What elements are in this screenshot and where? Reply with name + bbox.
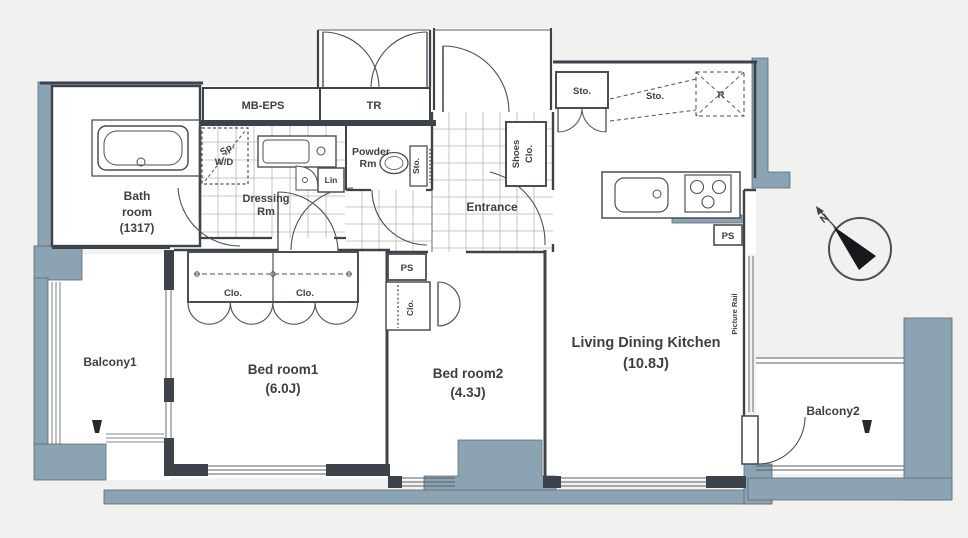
label-powder-2: Rm <box>360 158 377 170</box>
label-fridge: R <box>718 90 725 101</box>
trunk-porch-floor <box>318 30 430 88</box>
balcony1-left-band <box>34 278 48 446</box>
label-shoes-clo: Clo. <box>524 145 535 163</box>
label-ldk-name: Living Dining Kitchen <box>571 335 720 351</box>
room-floors <box>48 28 904 480</box>
label-clo-left: Clo. <box>224 288 242 299</box>
label-bed2-size: (4.3J) <box>450 385 485 400</box>
entry-porch-floor <box>432 28 553 112</box>
wall-ldk-bottom-b <box>706 476 746 488</box>
compass-needle <box>833 226 876 270</box>
ldk-east-window-lines <box>749 256 753 412</box>
label-bed1-size: (6.0J) <box>265 381 300 396</box>
label-sto-toilet: Sto. <box>411 158 421 174</box>
label-washer-wd: W/D <box>215 157 234 168</box>
wall-bed1-west-a <box>164 250 174 290</box>
label-sto-closet: Sto. <box>573 86 591 97</box>
label-north: N <box>818 212 832 226</box>
label-tr: TR <box>367 100 382 112</box>
wall-ldk-bottom-a <box>543 476 561 488</box>
label-clo-right: Clo. <box>296 288 314 299</box>
label-shoes: Shoes <box>511 140 522 169</box>
label-powder-1: Powder <box>352 146 390 158</box>
label-bath-3: (1317) <box>120 221 155 235</box>
label-entrance: Entrance <box>466 200 518 214</box>
label-sto-dashed: Sto. <box>646 91 664 102</box>
label-bath-2: room <box>122 205 152 219</box>
wall-bed1-bottom-a <box>164 464 208 476</box>
label-picture-rail: Picture Rail <box>730 293 739 334</box>
label-bath-1: Bath <box>124 189 151 203</box>
label-dressing-2: Rm <box>257 206 275 218</box>
balcony2-bottom-strip <box>748 478 952 500</box>
washbasin-counter <box>258 136 336 167</box>
balcony1-bottom-block <box>34 444 106 480</box>
balcony2-door-leaf <box>742 416 758 464</box>
mb-eps-tr-floor <box>203 86 432 124</box>
west-wall-band <box>38 82 52 250</box>
floor-plan: MB-EPS TR Bath room (1317) Sp. W/D Dress… <box>0 0 968 538</box>
label-bed1-name: Bed room1 <box>248 362 319 377</box>
label-dressing-1: Dressing <box>242 193 289 205</box>
label-lin: Lin <box>325 175 338 185</box>
floor-plan-svg: MB-EPS TR Bath room (1317) Sp. W/D Dress… <box>0 0 968 538</box>
label-ps-bed2: PS <box>401 263 414 274</box>
label-mb-eps: MB-EPS <box>242 100 285 112</box>
balcony2-right-block <box>904 318 952 500</box>
label-balcony2: Balcony2 <box>806 404 860 418</box>
balcony1-top-block <box>34 246 82 280</box>
label-clo-bed2: Clo. <box>405 300 415 316</box>
label-balcony1: Balcony1 <box>83 355 137 369</box>
label-ldk-size: (10.8J) <box>623 356 669 372</box>
label-ps-kitchen: PS <box>722 231 735 242</box>
wall-bed1-west-b <box>164 378 174 402</box>
wall-bed1-bottom-b <box>326 464 390 476</box>
kitchen-counter <box>602 172 740 218</box>
label-bed2-name: Bed room2 <box>433 366 504 381</box>
bottom-outer-strip <box>104 490 772 504</box>
wall-bed2-bottom <box>388 476 402 488</box>
northeast-wall-block <box>752 58 790 188</box>
